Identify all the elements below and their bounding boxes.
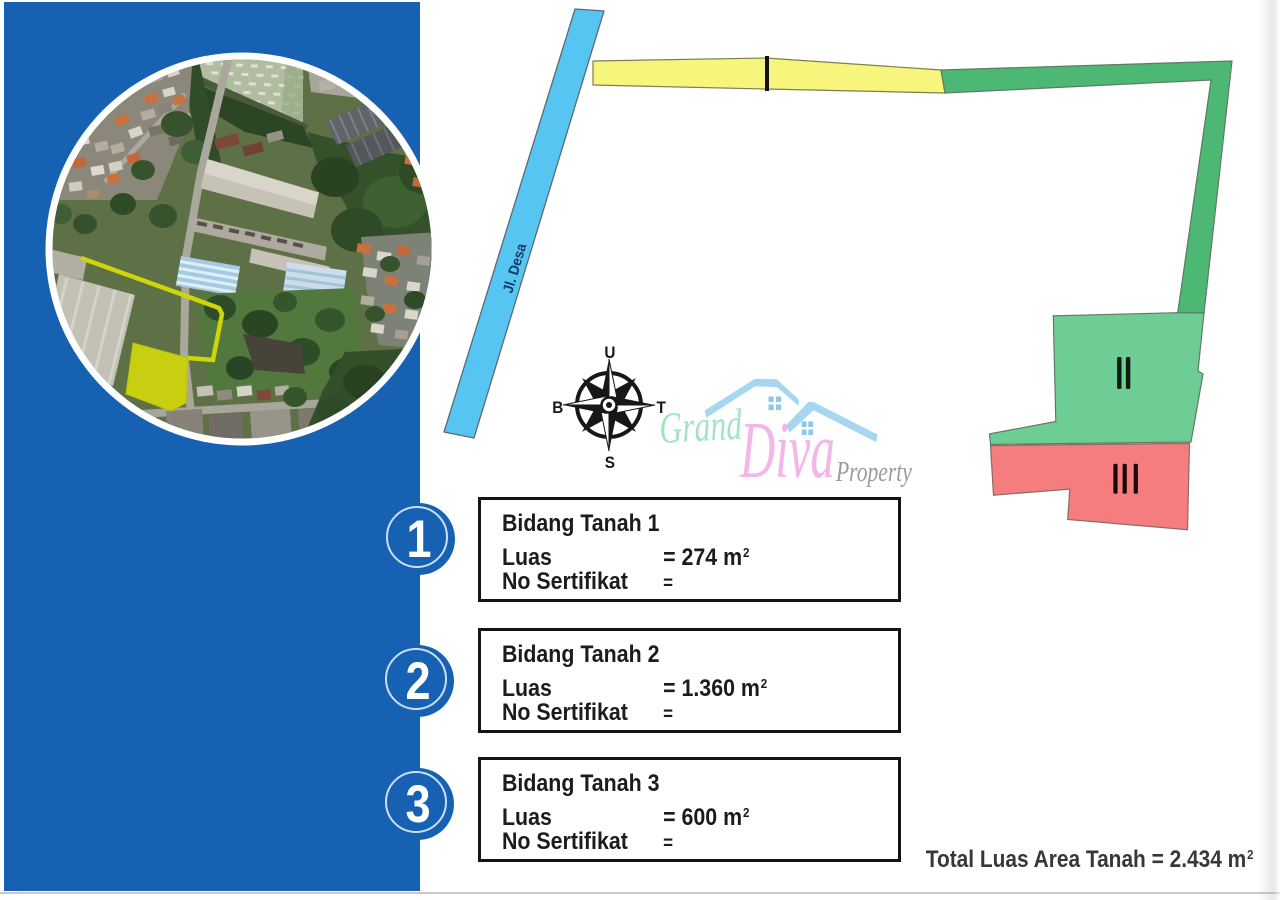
- svg-text:Diva: Diva: [739, 407, 835, 495]
- svg-text:B: B: [552, 398, 563, 417]
- svg-text:Property: Property: [835, 457, 912, 487]
- svg-text:U: U: [604, 343, 615, 362]
- svg-text:S: S: [605, 453, 615, 472]
- svg-text:Grand: Grand: [658, 401, 744, 454]
